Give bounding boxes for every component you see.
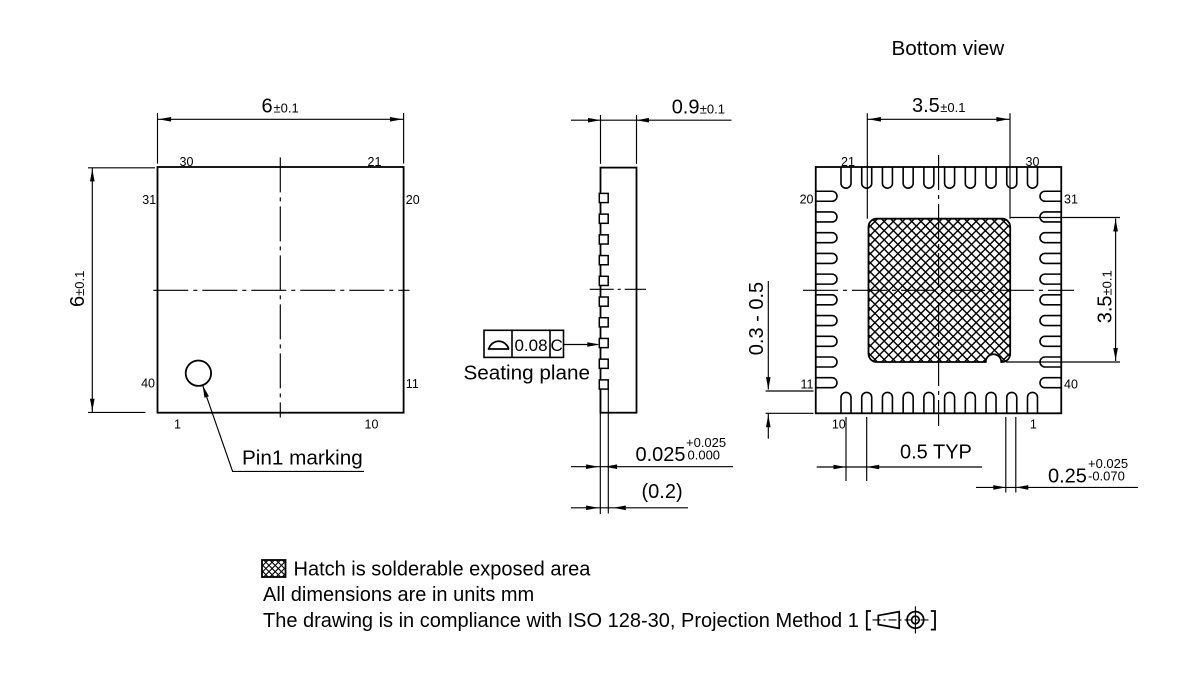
svg-text:-0.070: -0.070 xyxy=(1088,469,1125,484)
svg-text:20: 20 xyxy=(406,193,420,207)
svg-text:31: 31 xyxy=(142,193,156,207)
svg-text:11: 11 xyxy=(801,378,814,392)
svg-text:6: 6 xyxy=(262,96,273,118)
svg-text:1: 1 xyxy=(174,418,181,432)
svg-text:21: 21 xyxy=(368,155,382,169)
svg-text:40: 40 xyxy=(1064,378,1078,392)
svg-text:30: 30 xyxy=(1026,155,1040,169)
svg-text:Bottom view: Bottom view xyxy=(892,37,1005,60)
svg-text:10: 10 xyxy=(365,418,379,432)
svg-text:31: 31 xyxy=(1064,193,1078,207)
svg-text:3.5±0.1: 3.5±0.1 xyxy=(1094,270,1116,323)
svg-text:The drawing is in compliance w: The drawing is in compliance with ISO 12… xyxy=(263,610,859,632)
svg-text:3.5: 3.5 xyxy=(912,95,940,117)
svg-text:20: 20 xyxy=(800,193,814,207)
svg-text:30: 30 xyxy=(180,155,194,169)
svg-text:±0.1: ±0.1 xyxy=(700,101,725,116)
svg-text:(0.2): (0.2) xyxy=(642,481,683,503)
svg-text:0.000: 0.000 xyxy=(688,448,721,463)
svg-text:Pin1 marking: Pin1 marking xyxy=(242,447,363,470)
svg-text:0.025: 0.025 xyxy=(636,444,686,466)
svg-text:6±0.1: 6±0.1 xyxy=(67,271,89,307)
svg-text:C: C xyxy=(550,336,562,355)
svg-text:1: 1 xyxy=(1030,418,1037,432)
svg-text:0.08: 0.08 xyxy=(514,336,547,355)
svg-text:11: 11 xyxy=(406,377,419,391)
svg-text:±0.1: ±0.1 xyxy=(274,101,299,116)
svg-text:10: 10 xyxy=(832,418,846,432)
svg-text:0.25: 0.25 xyxy=(1048,466,1087,488)
svg-text:0.9: 0.9 xyxy=(672,96,700,118)
svg-text:21: 21 xyxy=(841,155,855,169)
svg-text:40: 40 xyxy=(141,377,155,391)
svg-text:Seating plane: Seating plane xyxy=(464,362,591,385)
svg-text:0.5 TYP: 0.5 TYP xyxy=(900,442,972,464)
svg-text:0.3 - 0.5: 0.3 - 0.5 xyxy=(746,282,768,355)
svg-text:Hatch is solderable exposed ar: Hatch is solderable exposed area xyxy=(294,559,592,581)
svg-text:All dimensions are in units mm: All dimensions are in units mm xyxy=(263,584,534,606)
svg-text:±0.1: ±0.1 xyxy=(940,100,965,115)
